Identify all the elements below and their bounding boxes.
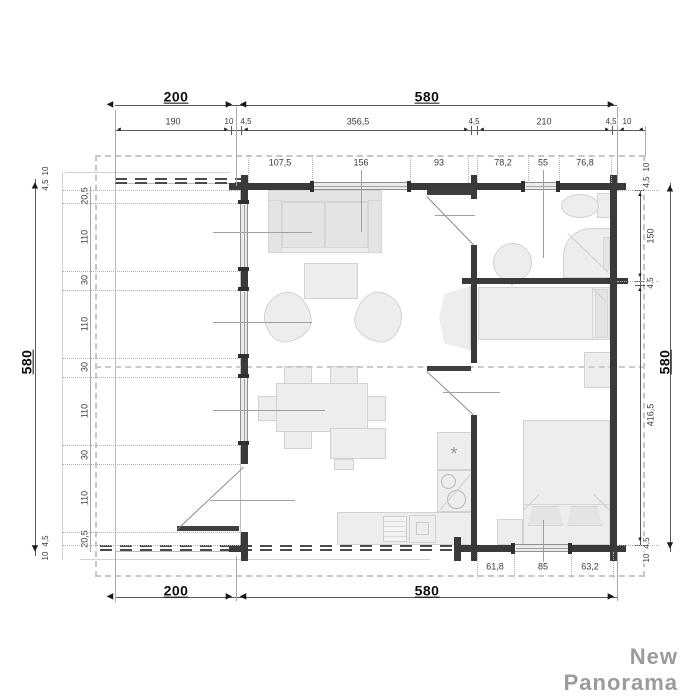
- dining-chair: [367, 396, 386, 421]
- dimension-line: [115, 130, 645, 131]
- window-west-3: [240, 377, 248, 445]
- bedroom-door-leaf: [427, 366, 471, 371]
- witness-line: [645, 126, 646, 156]
- dimension-label: 150: [646, 227, 655, 244]
- roof-ridge-line: [95, 366, 645, 368]
- dimension-arrow: ◄: [116, 127, 122, 133]
- dimension-label: 110: [80, 403, 89, 419]
- bed-divider: [592, 288, 593, 339]
- dimension-label: 4,5: [239, 118, 252, 126]
- hob-symbol: *: [450, 445, 457, 463]
- witness-line-dotted: [312, 155, 313, 183]
- dimension-arrow: ◄: [238, 100, 249, 111]
- wall-joint: [462, 278, 476, 284]
- witness-line-dotted: [571, 552, 572, 578]
- sink-basin: [447, 490, 466, 509]
- dimension-label: 210: [535, 117, 552, 126]
- window-cap: [238, 441, 249, 445]
- dimension-arrow: ►: [224, 100, 235, 111]
- leader-line: [213, 410, 325, 411]
- dimension-arrow: ◄: [638, 127, 644, 133]
- dimension-label: 416,5: [646, 403, 655, 428]
- toilet-bowl: [561, 194, 599, 218]
- dimension-label: 156: [352, 158, 369, 167]
- witness-line-dotted: [248, 155, 249, 183]
- dimension-tick: [241, 126, 242, 135]
- dimension-arrow: ▲: [637, 287, 643, 293]
- dimension-arrow: ►: [224, 592, 235, 603]
- dimension-label: 30: [80, 449, 89, 461]
- dimension-label: 4,5: [647, 276, 655, 289]
- dimension-label: 10: [42, 551, 50, 562]
- dimension-tick: [612, 126, 613, 135]
- dimension-tick: [477, 126, 478, 135]
- bathroom-door-leaf: [427, 190, 471, 195]
- witness-line-dotted: [62, 290, 240, 291]
- dimension-label: 85: [537, 562, 549, 571]
- witness-line-dotted: [468, 155, 469, 183]
- kitchen-fridge-step: [334, 459, 354, 470]
- dimension-label: 20,5: [80, 529, 89, 549]
- dimension-arrow: ▼: [637, 273, 643, 279]
- witness-line-dotted: [62, 445, 240, 446]
- leader-line: [443, 392, 500, 393]
- window-cap: [238, 287, 249, 291]
- nightstand: [584, 352, 612, 388]
- dimension-arrow: ▲: [30, 181, 41, 192]
- window-cap: [521, 181, 525, 192]
- witness-line-dotted: [62, 464, 240, 465]
- interior-wall-vertical: [471, 415, 477, 545]
- dimension-arrow: ▼: [637, 537, 643, 543]
- dimension-label: 190: [164, 117, 181, 126]
- dimension-arrow: ▲: [637, 192, 643, 198]
- dimension-arrow: ►: [223, 127, 229, 133]
- corner-joint: [454, 537, 461, 561]
- window-cap: [238, 267, 249, 271]
- wall-north: [241, 183, 617, 190]
- dimension-arrow: ►: [606, 592, 617, 603]
- interior-wall-horizontal: [474, 278, 613, 284]
- dimension-arrow: ◄: [105, 592, 116, 603]
- wall-east: [610, 183, 617, 552]
- terrace-beam-top: [115, 182, 241, 184]
- bed-pillow: [528, 506, 563, 526]
- dimension-label: 110: [80, 490, 89, 506]
- double-bed: [523, 420, 610, 545]
- dimension-label: 4,5: [42, 534, 50, 547]
- kitchen-drawers: [383, 516, 407, 542]
- window-cap: [407, 181, 411, 192]
- witness-line: [617, 552, 618, 601]
- corner-joint: [610, 183, 626, 190]
- witness-line-dotted: [62, 377, 240, 378]
- corner-joint: [229, 545, 245, 552]
- dimension-label: 107,5: [268, 158, 293, 167]
- shower-fixtures: [603, 237, 610, 270]
- dimension-arrow: ◄: [238, 592, 249, 603]
- dining-chair: [284, 366, 312, 384]
- dimension-line: [35, 179, 36, 556]
- dimension-label: 4,5: [604, 118, 617, 126]
- dimension-label: 55: [537, 158, 549, 167]
- witness-line-dotted: [613, 552, 614, 578]
- dimension-label: 30: [80, 361, 89, 373]
- dimension-arrow: ►: [463, 127, 469, 133]
- sofa-cushion: [282, 202, 325, 248]
- leader-line: [210, 500, 295, 501]
- dining-table: [276, 383, 368, 432]
- terrace-door-leaf: [177, 526, 239, 531]
- dining-chair: [330, 366, 358, 384]
- dimension-label: 76,8: [575, 158, 595, 167]
- nightstand: [497, 519, 523, 545]
- south-glazing-dashed: [100, 549, 455, 551]
- blanket-edge: [523, 504, 610, 505]
- interior-wall-vertical: [471, 245, 477, 363]
- dimension-tick: [471, 126, 472, 135]
- witness-line-dotted: [514, 552, 515, 578]
- overall-dimension-label: 200: [163, 584, 190, 599]
- dimension-label: 78,2: [493, 158, 513, 167]
- overall-dimension-label: 580: [20, 349, 35, 376]
- terrace-beam-top: [115, 178, 241, 180]
- window-north-55: [524, 182, 559, 190]
- sofa-back: [268, 190, 382, 202]
- dimension-label: 10: [224, 118, 235, 126]
- dimension-arrow: ◄: [619, 127, 625, 133]
- dimension-tick: [635, 285, 645, 286]
- dining-chair: [258, 396, 277, 421]
- overall-dimension-label: 580: [658, 349, 673, 376]
- window-cap: [511, 543, 515, 554]
- dimension-label: 356,5: [346, 117, 371, 126]
- single-bed: [478, 287, 610, 340]
- brand-watermark: New Panorama: [518, 644, 678, 696]
- witness-line-dotted: [477, 552, 478, 578]
- bathroom-sink: [493, 243, 532, 282]
- witness-line-dotted: [62, 358, 240, 359]
- dining-chair: [284, 431, 312, 449]
- dimension-label: 4,5: [467, 118, 480, 126]
- dimension-arrow: ▼: [665, 541, 676, 552]
- dimension-label: 10: [42, 166, 50, 177]
- dimension-label: 30: [80, 274, 89, 286]
- fascia-line-bottom: [80, 559, 430, 560]
- corner-joint: [610, 545, 626, 552]
- coffee-table: [304, 263, 358, 299]
- dimension-label: 93: [433, 158, 445, 167]
- dimension-label: 110: [80, 316, 89, 332]
- overall-dimension-label: 200: [163, 90, 190, 105]
- dimension-label: 63,2: [580, 562, 600, 571]
- dimension-label: 4,5: [42, 178, 50, 191]
- dimension-line: [640, 190, 641, 545]
- witness-line-dotted: [410, 155, 411, 183]
- witness-line-dotted: [477, 155, 478, 183]
- dimension-label: 4,5: [643, 536, 651, 549]
- dimension-arrow: ▼: [30, 544, 41, 555]
- witness-line: [115, 110, 116, 183]
- leader-line: [213, 322, 312, 323]
- dimension-arrow: ▲: [665, 184, 676, 195]
- witness-line: [236, 107, 237, 186]
- window-cap: [556, 181, 560, 192]
- dimension-arrow: ◄: [243, 127, 249, 133]
- witness-line: [90, 186, 91, 552]
- dimension-arrow: ►: [606, 100, 617, 111]
- leader-line: [543, 170, 544, 258]
- kitchen-fridge: [330, 428, 386, 459]
- witness-line-dotted: [559, 155, 560, 183]
- witness-line-dotted: [528, 155, 529, 183]
- kitchen-oven-door: [416, 522, 429, 535]
- dimension-label: 20,5: [80, 186, 89, 206]
- corner-joint: [229, 183, 245, 190]
- dimension-label: 10: [643, 162, 651, 173]
- dimension-label: 10: [622, 118, 633, 126]
- sink-basin: [441, 474, 456, 489]
- dimension-arrow: ◄: [479, 127, 485, 133]
- witness-line-dotted: [62, 271, 240, 272]
- dimension-label: 10: [643, 553, 651, 564]
- window-cap: [310, 181, 314, 192]
- leader-line: [213, 232, 312, 233]
- overall-dimension-label: 580: [414, 584, 441, 599]
- bed-pillow: [567, 506, 602, 526]
- sofa-armrest: [368, 200, 382, 253]
- dimension-arrow: ◄: [105, 100, 116, 111]
- window-west-1: [240, 203, 248, 271]
- leader-line: [361, 170, 362, 232]
- window-cap: [238, 374, 249, 378]
- overall-dimension-label: 580: [414, 90, 441, 105]
- window-cap: [568, 543, 572, 554]
- witness-line-dotted: [617, 190, 659, 191]
- witness-line-dotted: [611, 155, 612, 183]
- leader-line: [543, 520, 544, 562]
- dimension-tick: [231, 126, 232, 135]
- dimension-line: [115, 597, 617, 598]
- leader-line: [435, 215, 475, 216]
- fascia-line-top: [65, 172, 230, 173]
- dimension-label: 4,5: [643, 175, 651, 188]
- sofa-armrest: [268, 200, 282, 253]
- window-west-2: [240, 290, 248, 358]
- dimension-label: 110: [80, 229, 89, 245]
- window-cap: [238, 354, 249, 358]
- dimension-arrow: ►: [604, 127, 610, 133]
- dimension-line: [115, 105, 617, 106]
- dimension-label: 61,8: [485, 562, 505, 571]
- floor-plan: *: [0, 0, 700, 700]
- witness-line-dotted: [617, 545, 659, 546]
- window-cap: [238, 200, 249, 204]
- fascia-line-left: [62, 172, 63, 560]
